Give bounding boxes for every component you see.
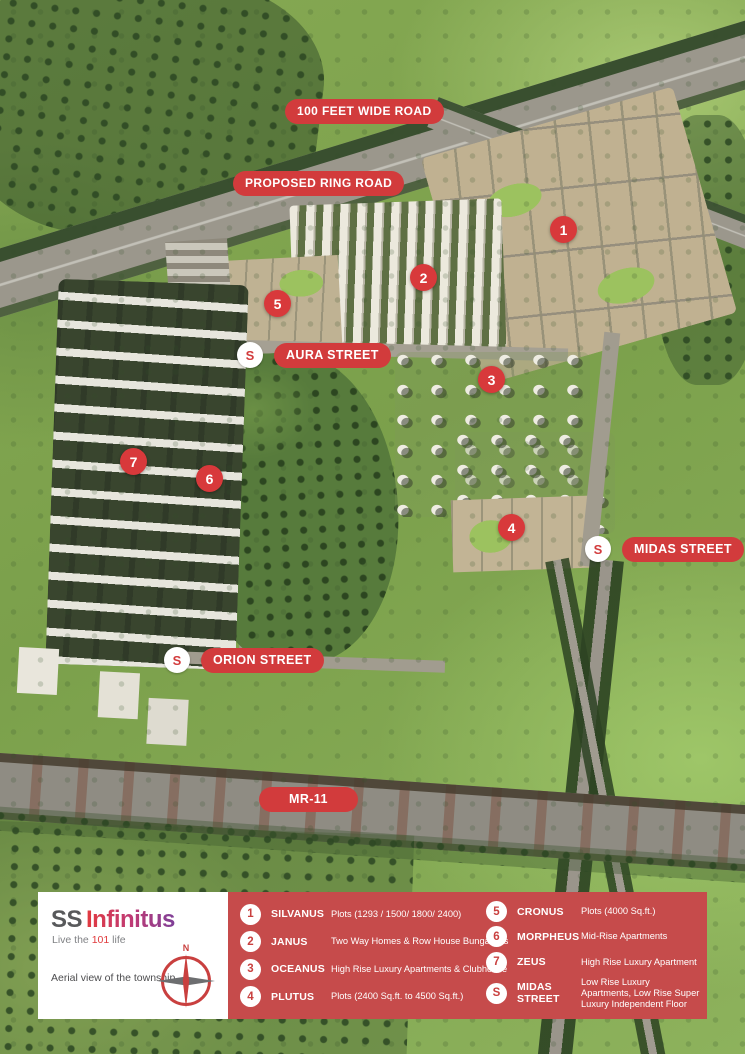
legend-name: MORPHEUS	[517, 931, 581, 943]
legend-item-oceanus: 3 OCEANUS High Rise Luxury Apartments & …	[240, 959, 492, 980]
legend-desc: High Rise Luxury Apartment	[581, 957, 697, 968]
township-aerial-map: 100 FEET WIDE ROAD PROPOSED RING ROAD MR…	[0, 0, 745, 1054]
legend-item-janus: 2 JANUS Two Way Homes & Row House Bungal…	[240, 931, 492, 952]
compass-icon: N	[161, 956, 211, 1006]
street-label-midas-text: MIDAS STREET	[622, 537, 744, 562]
legend-desc: Plots (2400 Sq.ft. to 4500 Sq.ft.)	[331, 991, 463, 1002]
legend-item-zeus: 7 ZEUS High Rise Luxury Apartment	[486, 952, 701, 973]
street-s-icon: S	[237, 342, 263, 368]
legend-name: JANUS	[271, 936, 331, 948]
map-marker-4: 4	[498, 514, 525, 541]
road-label-100-feet-wide: 100 FEET WIDE ROAD	[285, 99, 444, 124]
legend-marker-1: 1	[240, 904, 261, 925]
map-marker-7: 7	[120, 448, 147, 475]
legend-column-2: 5 CRONUS Plots (4000 Sq.ft.) 6 MORPHEUS …	[486, 892, 701, 1019]
legend-column-1: 1 SILVANUS Plots (1293 / 1500/ 1800/ 240…	[240, 892, 492, 1019]
legend-marker-4: 4	[240, 986, 261, 1007]
legend-name: PLUTUS	[271, 991, 331, 1003]
map-marker-3: 3	[478, 366, 505, 393]
legend-marker-7: 7	[486, 952, 507, 973]
legend-marker-6: 6	[486, 926, 507, 947]
tagline-post: life	[109, 934, 125, 946]
legend-desc: High Rise Luxury Apartments & Clubhouse	[331, 964, 507, 975]
legend-item-midas-street: S MIDAS STREET Low Rise Luxury Apartment…	[486, 977, 701, 1010]
street-s-icon: S	[164, 647, 190, 673]
legend-name: OCEANUS	[271, 963, 331, 975]
map-caption: Aerial view of the township	[51, 972, 175, 984]
legend-desc: Plots (1293 / 1500/ 1800/ 2400)	[331, 909, 461, 920]
legend-desc: Plots (4000 Sq.ft.)	[581, 906, 655, 917]
legend-desc: Mid-Rise Apartments	[581, 931, 667, 942]
legend-desc: Two Way Homes & Row House Bungalows	[331, 936, 508, 947]
tagline-highlight: 101	[92, 934, 110, 946]
legend-name: SILVANUS	[271, 908, 331, 920]
street-label-midas: S MIDAS STREET	[585, 536, 744, 562]
legend-panel: 1 SILVANUS Plots (1293 / 1500/ 1800/ 240…	[228, 892, 707, 1019]
logo-primary: SS	[51, 906, 82, 933]
legend-marker-s: S	[486, 983, 507, 1004]
tagline-pre: Live the	[52, 934, 92, 946]
map-marker-2: 2	[410, 264, 437, 291]
logo: SSInfinitus	[51, 906, 175, 934]
legend-name: MIDAS STREET	[517, 981, 581, 1005]
street-label-orion-text: ORION STREET	[201, 648, 324, 673]
legend-marker-5: 5	[486, 901, 507, 922]
legend-marker-3: 3	[240, 959, 261, 980]
legend-item-cronus: 5 CRONUS Plots (4000 Sq.ft.)	[486, 901, 701, 922]
street-label-aura-text: AURA STREET	[274, 343, 391, 368]
logo-secondary: Infinitus	[86, 906, 175, 933]
map-marker-1: 1	[550, 216, 577, 243]
legend-item-silvanus: 1 SILVANUS Plots (1293 / 1500/ 1800/ 240…	[240, 904, 492, 925]
legend-name: ZEUS	[517, 956, 581, 968]
street-label-aura: S AURA STREET	[237, 342, 391, 368]
map-marker-5: 5	[264, 290, 291, 317]
street-s-icon: S	[585, 536, 611, 562]
street-label-orion: S ORION STREET	[164, 647, 324, 673]
map-marker-6: 6	[196, 465, 223, 492]
road-label-proposed-ring-road: PROPOSED RING ROAD	[233, 171, 404, 196]
legend-marker-2: 2	[240, 931, 261, 952]
tagline: Live the 101 life	[52, 934, 126, 946]
legend-item-morpheus: 6 MORPHEUS Mid-Rise Apartments	[486, 926, 701, 947]
legend-name: CRONUS	[517, 906, 581, 918]
legend-item-plutus: 4 PLUTUS Plots (2400 Sq.ft. to 4500 Sq.f…	[240, 986, 492, 1007]
branding-card: SSInfinitus Live the 101 life Aerial vie…	[38, 892, 228, 1019]
compass-north-label: N	[183, 943, 190, 953]
legend-desc: Low Rise Luxury Apartments, Low Rise Sup…	[581, 977, 701, 1010]
road-label-mr-11: MR-11	[259, 787, 358, 812]
